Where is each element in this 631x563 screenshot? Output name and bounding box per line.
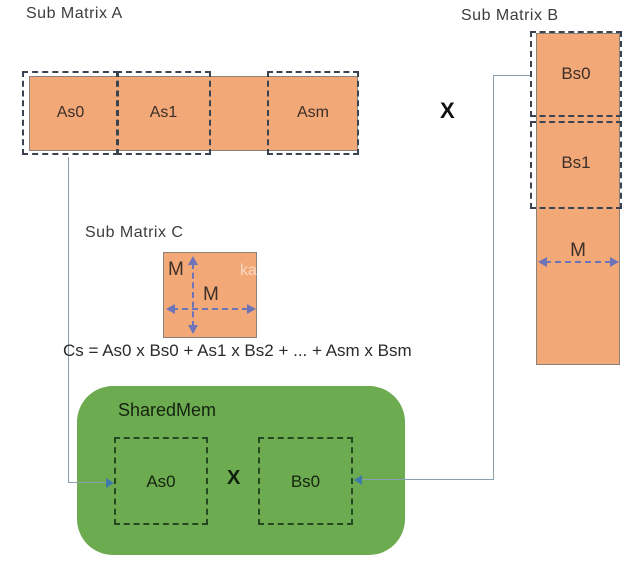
connector-b-horizontal-line [362,479,494,480]
matrix-c-dim-label-vertical: M [168,259,184,281]
matrix-a-label-as1: As1 [116,104,211,122]
formula-text: Cs = As0 x Bs0 + As1 x Bs2 + ... + Asm x… [63,341,412,361]
matrix-c-dim-line-vertical [192,263,194,327]
matrix-b-dim-label: M [536,240,620,262]
connector-b-top-line [493,75,530,76]
matrix-c-title: Sub Matrix C [85,224,183,242]
multiply-sign-ab: X [440,98,455,124]
matrix-b-title: Sub Matrix B [461,7,559,25]
connector-a-arrowhead-icon [106,478,114,488]
connector-a-vertical-line [68,157,69,482]
matrix-c-dim-arrow-left-icon [166,304,175,314]
sharedmem-label-bs0: Bs0 [258,472,353,492]
connector-b-arrowhead-icon [354,475,362,485]
matrix-c-dim-arrow-up-icon [188,256,198,265]
matrix-b-label-bs1: Bs1 [530,153,622,173]
matrix-a-label-asm: Asm [267,104,359,122]
matrix-c-dim-line-horizontal [172,308,248,310]
matrix-b-label-bs0: Bs0 [530,64,622,84]
sharedmem-multiply-sign: X [227,467,240,490]
matrix-c-dim-arrow-right-icon [247,304,256,314]
watermark-text: ka [240,262,257,280]
diagram-canvas: Sub Matrix A As0 As1 Asm X Sub Matrix B … [0,0,631,563]
sharedmem-title: SharedMem [118,400,216,421]
sharedmem-label-as0: As0 [114,472,208,492]
matrix-a-title: Sub Matrix A [26,5,123,23]
connector-a-horizontal-line [68,482,107,483]
matrix-c-dim-label-horizontal: M [203,284,219,306]
matrix-c-dim-arrow-down-icon [188,325,198,334]
connector-b-vertical-line [493,75,494,479]
matrix-a-label-as0: As0 [22,104,119,122]
